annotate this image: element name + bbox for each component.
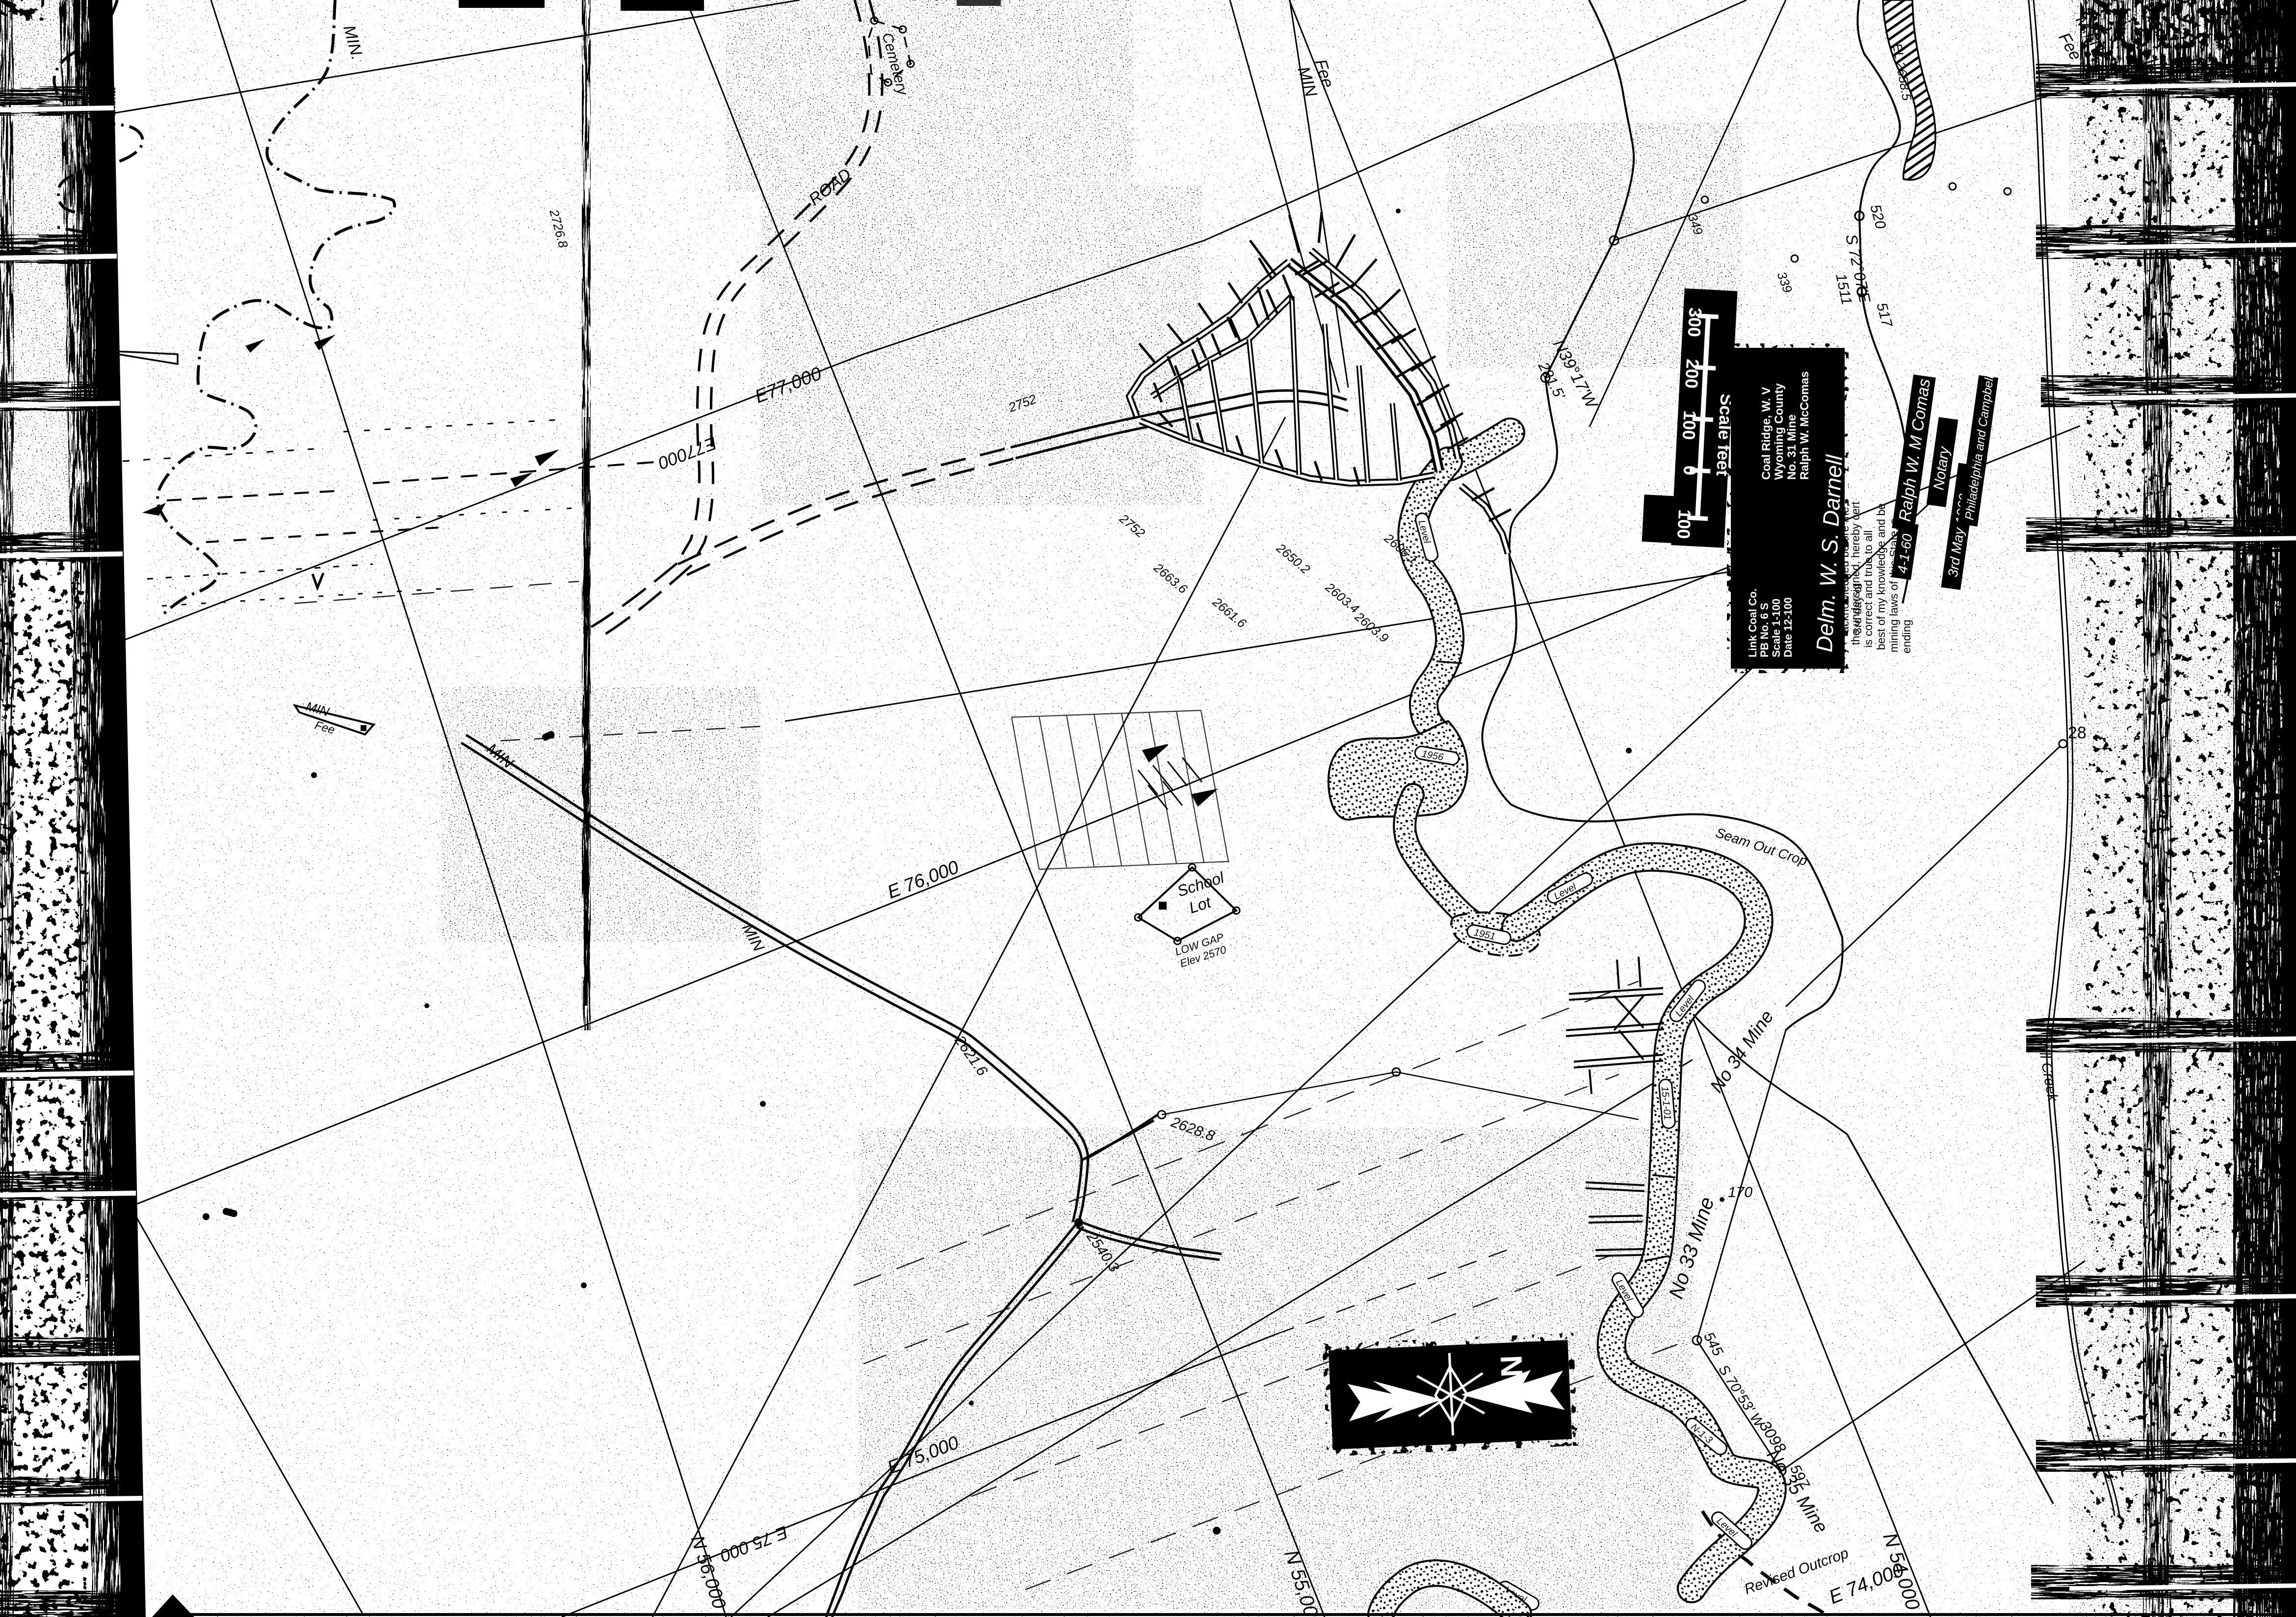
svg-text:Ralph W. McComas: Ralph W. McComas [1798,371,1811,480]
svg-text:PB No. 6 S: PB No. 6 S [1758,603,1771,657]
svg-text:100: 100 [1673,509,1695,539]
svg-text:0: 0 [1680,465,1700,476]
svg-text:200: 200 [1681,359,1703,389]
svg-text:acknowledged before me,: acknowledged before me, [1838,504,1851,633]
svg-text:100: 100 [1679,410,1700,441]
svg-text:Coal Ridge, W. V: Coal Ridge, W. V [1760,387,1773,480]
svg-text:Date 12-100: Date 12-100 [1782,598,1794,657]
svg-text:No. 31 Mine: No. 31 Mine [1785,415,1799,480]
svg-text:ending: ending [1900,620,1913,653]
svg-text:300: 300 [1684,307,1706,338]
svg-text:Link Coal Co.: Link Coal Co. [1747,588,1759,657]
svg-text:170: 170 [1728,1184,1752,1200]
svg-text:best of my knowledge and be: best of my knowledge and be [1875,503,1887,650]
svg-text:N: N [1494,1355,1529,1378]
svg-text:3rd day of: 3rd day of [1851,583,1864,634]
svg-text:Wyoming County: Wyoming County [1773,383,1786,480]
svg-text:Scale 1-100: Scale 1-100 [1770,599,1782,657]
